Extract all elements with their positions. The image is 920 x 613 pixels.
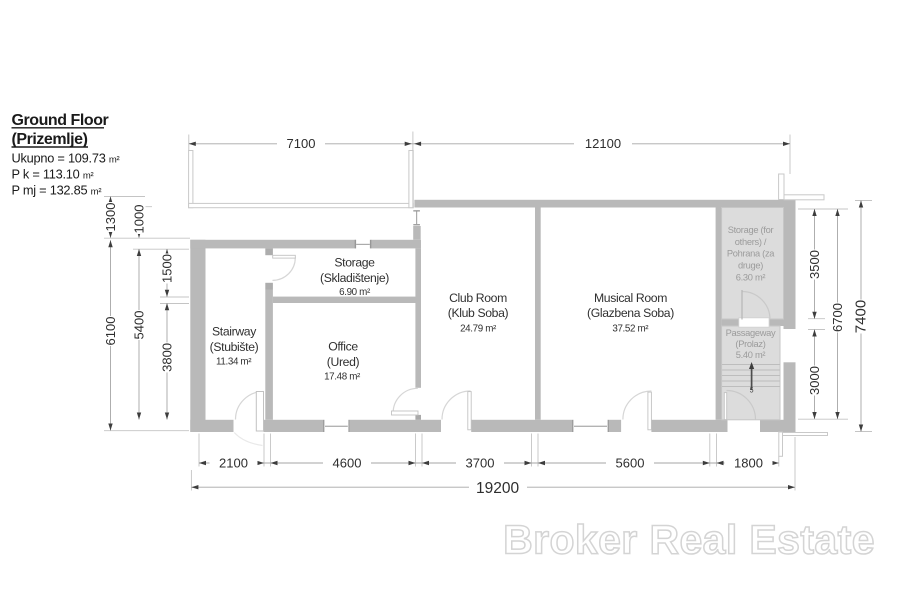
svg-text:P k = 113.10 m²: P k = 113.10 m² <box>12 167 94 182</box>
svg-text:Ukupno = 109.73 m²: Ukupno = 109.73 m² <box>12 151 120 166</box>
svg-text:Passageway: Passageway <box>726 328 776 338</box>
svg-text:19200: 19200 <box>476 480 519 497</box>
svg-text:6.90 m²: 6.90 m² <box>339 287 371 298</box>
svg-text:Pohrana (za: Pohrana (za <box>727 249 775 259</box>
svg-text:37.52 m²: 37.52 m² <box>612 324 649 335</box>
svg-text:1000: 1000 <box>132 205 147 234</box>
svg-text:3800: 3800 <box>160 343 175 372</box>
svg-text:6.30 m²: 6.30 m² <box>736 273 766 283</box>
svg-text:(Prolaz): (Prolaz) <box>735 339 765 349</box>
svg-text:P mj = 132.85 m²: P mj = 132.85 m² <box>12 183 102 198</box>
svg-text:(Ured): (Ured) <box>327 355 360 369</box>
svg-text:others) /: others) / <box>735 237 767 247</box>
svg-text:5600: 5600 <box>616 456 645 471</box>
svg-text:6100: 6100 <box>103 317 118 346</box>
svg-text:Storage: Storage <box>334 256 375 270</box>
svg-text:2100: 2100 <box>219 456 248 471</box>
svg-text:Storage (for: Storage (for <box>728 225 774 235</box>
svg-text:7400: 7400 <box>853 300 870 333</box>
svg-text:3000: 3000 <box>807 366 822 395</box>
svg-text:24.79 m²: 24.79 m² <box>460 324 497 335</box>
svg-text:7100: 7100 <box>287 136 316 151</box>
svg-text:(Prizemlje): (Prizemlje) <box>12 131 88 148</box>
svg-text:4600: 4600 <box>333 456 362 471</box>
svg-text:1500: 1500 <box>160 254 175 283</box>
svg-text:11.34 m²: 11.34 m² <box>216 357 252 368</box>
svg-text:Office: Office <box>328 340 358 354</box>
svg-text:(Glazbena Soba): (Glazbena Soba) <box>587 306 674 320</box>
svg-text:12100: 12100 <box>585 136 621 151</box>
svg-text:5.40 m²: 5.40 m² <box>736 350 766 360</box>
svg-text:Musical Room: Musical Room <box>594 291 667 305</box>
svg-text:(Klub Soba): (Klub Soba) <box>448 306 509 320</box>
svg-text:5400: 5400 <box>132 311 147 340</box>
svg-text:1300: 1300 <box>103 203 118 232</box>
svg-text:5: 5 <box>750 388 754 395</box>
svg-text:(Stubište): (Stubište) <box>210 340 259 354</box>
svg-text:3500: 3500 <box>807 250 822 279</box>
svg-text:17.48 m²: 17.48 m² <box>324 372 361 383</box>
svg-text:1800: 1800 <box>734 456 763 471</box>
svg-text:6700: 6700 <box>830 303 845 332</box>
svg-text:Stairway: Stairway <box>212 325 257 339</box>
svg-text:druge): druge) <box>738 261 763 271</box>
svg-text:Ground Floor: Ground Floor <box>12 112 109 129</box>
svg-text:Club Room: Club Room <box>449 291 507 305</box>
svg-text:(Skladištenje): (Skladištenje) <box>320 271 389 285</box>
svg-text:3700: 3700 <box>466 456 495 471</box>
svg-text:Broker Real Estate: Broker Real Estate <box>503 517 875 563</box>
